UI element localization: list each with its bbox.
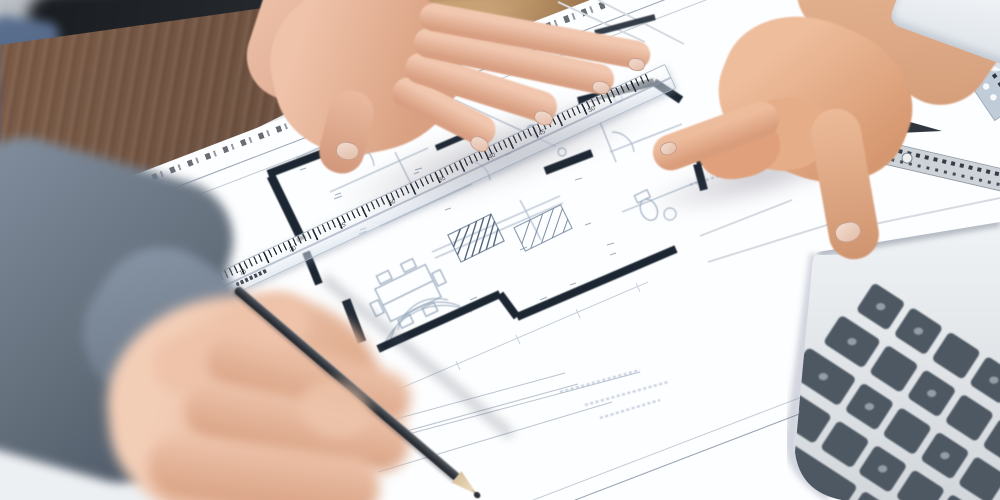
photo-architects-floorplan: 1520253035404550 xyxy=(0,0,1000,500)
key-glyph-blur xyxy=(865,403,874,410)
key-glyph-blur xyxy=(914,328,923,335)
key-glyph-blur xyxy=(940,452,949,459)
laptop xyxy=(729,222,1000,500)
key-glyph-blur xyxy=(847,338,856,345)
key-glyph-blur xyxy=(876,303,885,310)
key-glyph-blur xyxy=(927,390,936,397)
key-glyph-blur xyxy=(819,373,828,380)
key-glyph-blur xyxy=(989,377,998,384)
key-glyph-blur xyxy=(878,465,887,472)
